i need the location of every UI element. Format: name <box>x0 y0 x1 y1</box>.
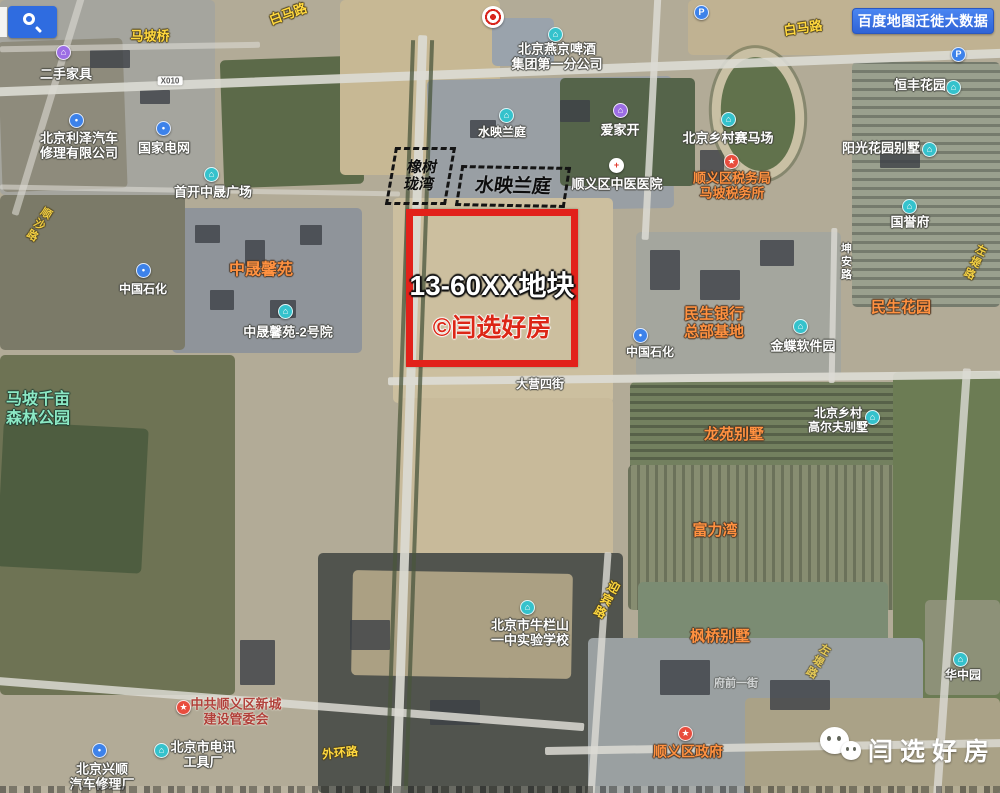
map-label: 大营四街 <box>516 377 564 391</box>
poi-icon[interactable]: ⌂ <box>499 108 514 123</box>
search-icon-handle <box>35 26 42 33</box>
search-button[interactable] <box>8 6 57 38</box>
power-grid-icon[interactable]: • <box>156 121 171 136</box>
wechat-icon-small <box>841 741 861 760</box>
wechat-account-name: 闫选好房 <box>868 732 996 768</box>
map-label[interactable]: 二手家具 <box>40 66 92 81</box>
poi-icon[interactable]: ⌂ <box>204 167 219 182</box>
map-label: 白马路 <box>267 0 309 28</box>
truncated-bottom-labels <box>0 786 1000 793</box>
terrain-patch <box>0 421 149 573</box>
poi-icon[interactable]: ⌂ <box>56 45 71 60</box>
gas-station-icon[interactable]: • <box>633 328 648 343</box>
hospital-cross-icon[interactable]: + <box>609 158 624 173</box>
poi-icon[interactable]: ⌂ <box>613 103 628 118</box>
target-station-icon <box>482 6 504 28</box>
map-label[interactable]: 中国石化 <box>626 345 674 359</box>
building-block <box>300 225 322 245</box>
building-block <box>700 270 740 300</box>
plot-highlight-box: 13-60XX地块 ©闫选好房 <box>406 209 578 367</box>
poi-icon[interactable]: ⌂ <box>154 743 169 758</box>
map-label[interactable]: 枫桥别墅 <box>690 628 750 646</box>
map-label[interactable]: 北京乡村赛马场 <box>682 130 773 145</box>
wechat-icon-eye <box>827 736 831 741</box>
map-label[interactable]: 阳光花园别墅 <box>842 140 920 155</box>
parking-icon[interactable]: P <box>694 5 709 20</box>
wechat-icon-eye <box>853 747 856 751</box>
terrain-patch <box>0 195 185 350</box>
map-label[interactable]: 顺义区中医医院 <box>571 176 662 191</box>
map-label[interactable]: 国誉府 <box>890 214 929 229</box>
poi-icon[interactable]: ⌂ <box>953 652 968 667</box>
building-block <box>195 225 220 243</box>
map-label[interactable]: 中晟馨苑 <box>229 262 293 281</box>
building-block <box>770 680 830 710</box>
map-label: 马坡桥 <box>130 28 169 43</box>
plot-credit-watermark: ©闫选好房 <box>433 308 551 344</box>
map-label[interactable]: 水映兰庭 <box>478 125 526 139</box>
car-repair-icon[interactable]: • <box>92 743 107 758</box>
map-label[interactable]: 北京市电讯工具厂 <box>170 740 235 771</box>
plot-title: 13-60XX地块 <box>410 264 575 304</box>
map-label[interactable]: 北京市牛栏山一中实验学校 <box>491 618 569 649</box>
map-label[interactable]: 马坡千亩森林公园 <box>6 391 70 429</box>
map-label[interactable]: 华中园 <box>945 668 981 682</box>
poi-icon[interactable]: ⌂ <box>548 27 563 42</box>
poi-icon[interactable]: ⌂ <box>902 199 917 214</box>
dashed-area-shuiyinglanting: 水映兰庭 <box>455 165 571 208</box>
area-label-line: 橡树 <box>405 159 438 176</box>
dashed-area-xiangshulongwan: 橡树 珑湾 <box>385 147 456 205</box>
search-input-edge[interactable] <box>0 7 7 37</box>
building-block <box>650 250 680 290</box>
map-label[interactable]: 顺义区税务局马坡税务所 <box>693 171 771 202</box>
building-block <box>760 240 794 266</box>
map-label[interactable]: 国家电网 <box>138 140 190 155</box>
poi-icon[interactable]: ⌂ <box>721 112 736 127</box>
wechat-icon-eye <box>846 747 849 751</box>
building-block <box>90 50 130 68</box>
poi-icon[interactable]: ⌂ <box>946 80 961 95</box>
building-block <box>210 290 234 310</box>
map-label: X010 <box>158 76 183 85</box>
car-repair-icon[interactable]: • <box>69 113 84 128</box>
satellite-map-canvas[interactable]: 马坡桥白马路白马路X010二手家具北京利泽汽车修理有限公司国家电网首开中晟广场北… <box>0 0 1000 793</box>
building-block <box>660 660 710 695</box>
map-label: 府前一街 <box>714 678 758 691</box>
map-label[interactable]: 爱家开 <box>600 122 639 137</box>
search-icon <box>23 13 35 25</box>
map-label[interactable]: 中国石化 <box>119 282 167 296</box>
government-star-icon[interactable]: ★ <box>176 700 191 715</box>
area-label-line: 水映兰庭 <box>473 175 552 198</box>
map-label: 坤安路 <box>839 243 852 282</box>
map-label[interactable]: 北京燕京啤酒集团第一分公司 <box>511 42 602 73</box>
wechat-icon-eye <box>837 736 841 741</box>
area-label-line: 珑湾 <box>402 176 435 193</box>
map-label[interactable]: 北京乡村高尔夫别墅 <box>808 406 868 434</box>
map-label[interactable]: 恒丰花园 <box>894 77 946 92</box>
building-block <box>240 640 275 685</box>
map-label[interactable]: 顺义区政府 <box>653 744 723 761</box>
building-block <box>560 100 590 122</box>
map-label[interactable]: 民生花园 <box>871 299 931 317</box>
government-star-icon[interactable]: ★ <box>678 726 693 741</box>
gas-station-icon[interactable]: • <box>136 263 151 278</box>
school-icon[interactable]: ⌂ <box>520 600 535 615</box>
poi-icon[interactable]: ⌂ <box>922 142 937 157</box>
map-label[interactable]: 金蝶软件园 <box>770 338 835 353</box>
map-label[interactable]: 中共顺义区新城建设管委会 <box>190 697 281 728</box>
government-star-icon[interactable]: ★ <box>724 154 739 169</box>
map-label[interactable]: 中晟馨苑-2号院 <box>243 324 333 339</box>
building-block <box>140 90 170 104</box>
terrain-patch <box>852 62 1000 307</box>
parking-icon[interactable]: P <box>951 47 966 62</box>
map-label[interactable]: 民生银行总部基地 <box>684 305 744 340</box>
wechat-watermark: 闫选好房 <box>820 724 995 770</box>
map-label[interactable]: 首开中晟广场 <box>174 184 252 199</box>
poi-icon[interactable]: ⌂ <box>278 304 293 319</box>
map-label[interactable]: 龙苑别墅 <box>704 426 764 444</box>
baidu-migration-data-button[interactable]: 百度地图迁徙大数据 <box>852 8 994 34</box>
map-label[interactable]: 富力湾 <box>692 522 737 540</box>
poi-icon[interactable]: ⌂ <box>793 319 808 334</box>
building-block <box>350 620 390 650</box>
map-label[interactable]: 北京利泽汽车修理有限公司 <box>40 131 118 162</box>
